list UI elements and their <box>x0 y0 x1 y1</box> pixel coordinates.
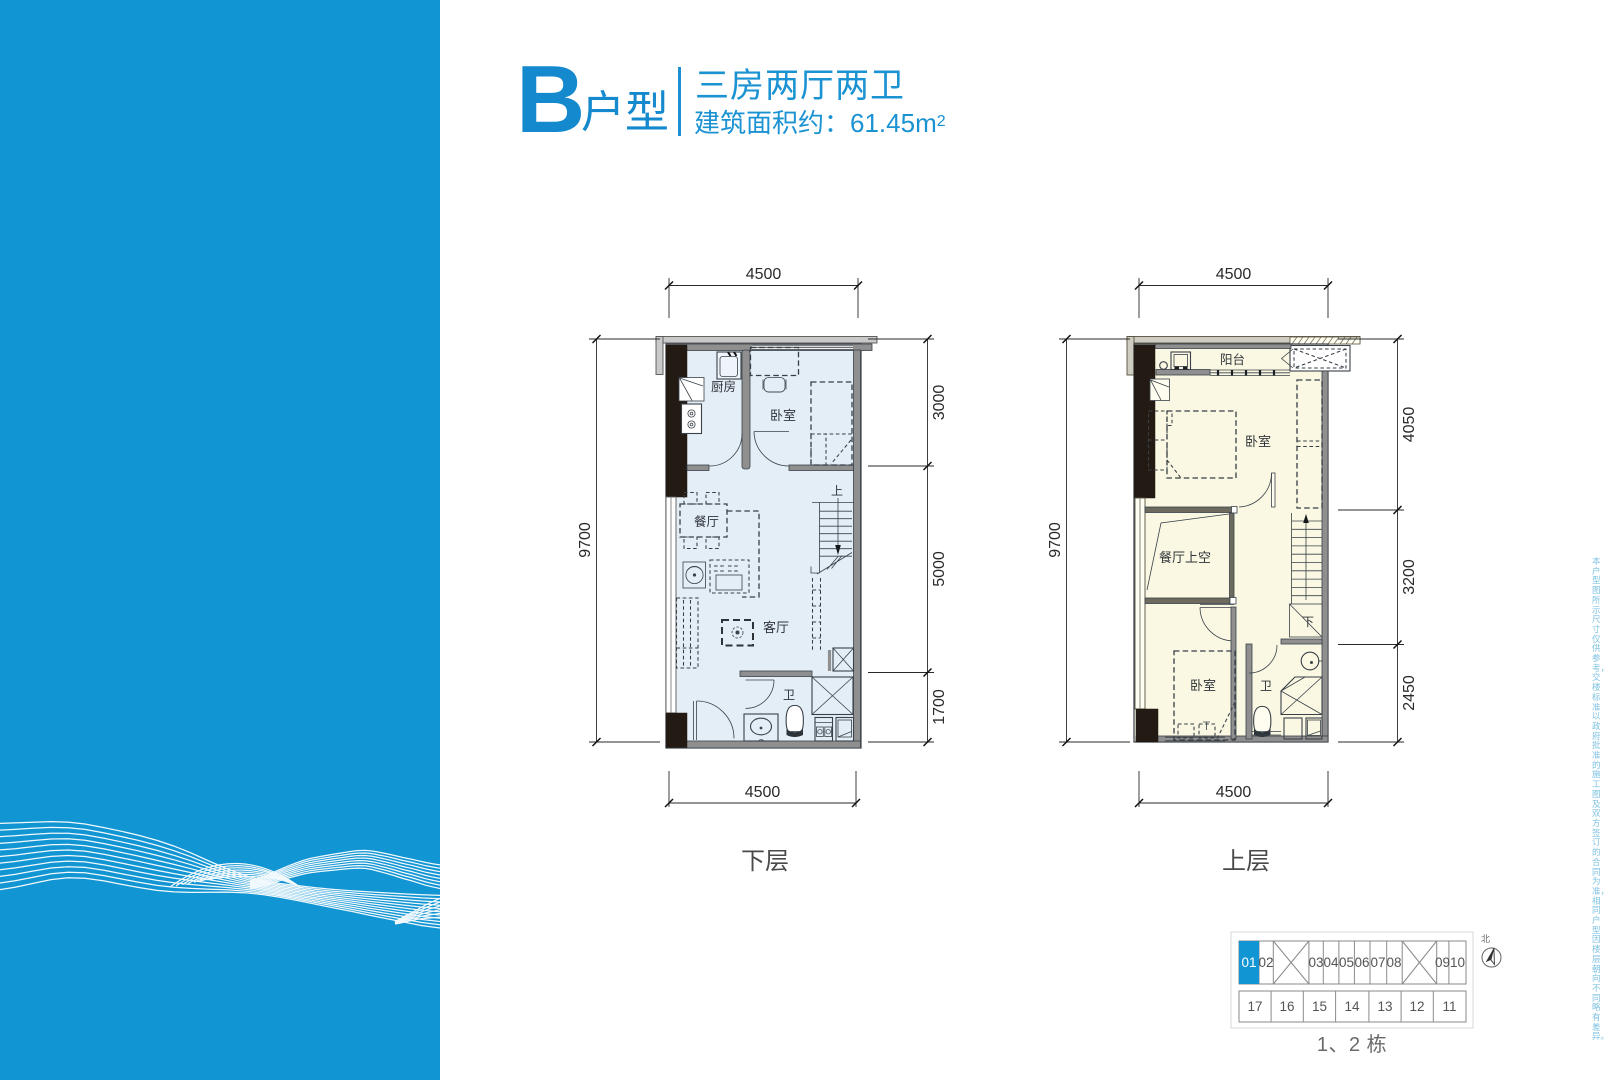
svg-text:15: 15 <box>1312 999 1327 1014</box>
svg-text:3200: 3200 <box>1401 559 1418 595</box>
svg-text:16: 16 <box>1279 999 1294 1014</box>
svg-text:餐厅: 餐厅 <box>694 514 719 529</box>
svg-text:上: 上 <box>831 484 843 498</box>
svg-text:4500: 4500 <box>1216 784 1252 801</box>
svg-text:4050: 4050 <box>1401 407 1418 443</box>
svg-text:9700: 9700 <box>577 522 594 558</box>
svg-text:1、2 栋: 1、2 栋 <box>1317 1033 1387 1056</box>
svg-text:17: 17 <box>1247 999 1262 1014</box>
svg-text:4500: 4500 <box>746 266 782 283</box>
svg-text:01: 01 <box>1241 955 1256 970</box>
svg-text:4500: 4500 <box>1216 266 1252 283</box>
svg-text:下: 下 <box>1302 615 1314 629</box>
svg-text:3000: 3000 <box>931 385 948 421</box>
svg-text:9700: 9700 <box>1047 522 1064 558</box>
svg-text:北: 北 <box>1481 934 1490 944</box>
svg-text:10: 10 <box>1450 955 1465 970</box>
svg-text:卫: 卫 <box>1260 679 1272 693</box>
svg-text:05: 05 <box>1339 955 1354 970</box>
svg-text:卫: 卫 <box>783 688 795 702</box>
svg-text:卧室: 卧室 <box>1245 434 1271 449</box>
svg-text:02: 02 <box>1258 955 1273 970</box>
svg-text:14: 14 <box>1344 999 1360 1014</box>
svg-text:04: 04 <box>1323 955 1339 970</box>
svg-text:餐厅上空: 餐厅上空 <box>1159 550 1211 565</box>
svg-text:卧室: 卧室 <box>770 408 796 423</box>
svg-text:03: 03 <box>1308 955 1323 970</box>
svg-text:08: 08 <box>1386 955 1401 970</box>
svg-text:阳台: 阳台 <box>1220 352 1245 367</box>
svg-text:09: 09 <box>1435 955 1450 970</box>
svg-text:11: 11 <box>1442 999 1456 1014</box>
svg-text:2450: 2450 <box>1401 675 1418 711</box>
svg-text:卧室: 卧室 <box>1190 678 1216 693</box>
svg-text:4500: 4500 <box>745 784 781 801</box>
svg-text:厨房: 厨房 <box>711 379 736 394</box>
svg-text:客厅: 客厅 <box>763 620 789 635</box>
svg-text:上层: 上层 <box>1222 848 1270 875</box>
svg-text:06: 06 <box>1354 955 1369 970</box>
svg-text:1700: 1700 <box>931 689 948 725</box>
svg-text:13: 13 <box>1377 999 1392 1014</box>
svg-text:下层: 下层 <box>741 848 789 875</box>
svg-text:07: 07 <box>1370 955 1385 970</box>
svg-text:5000: 5000 <box>931 551 948 587</box>
svg-text:12: 12 <box>1409 999 1424 1014</box>
